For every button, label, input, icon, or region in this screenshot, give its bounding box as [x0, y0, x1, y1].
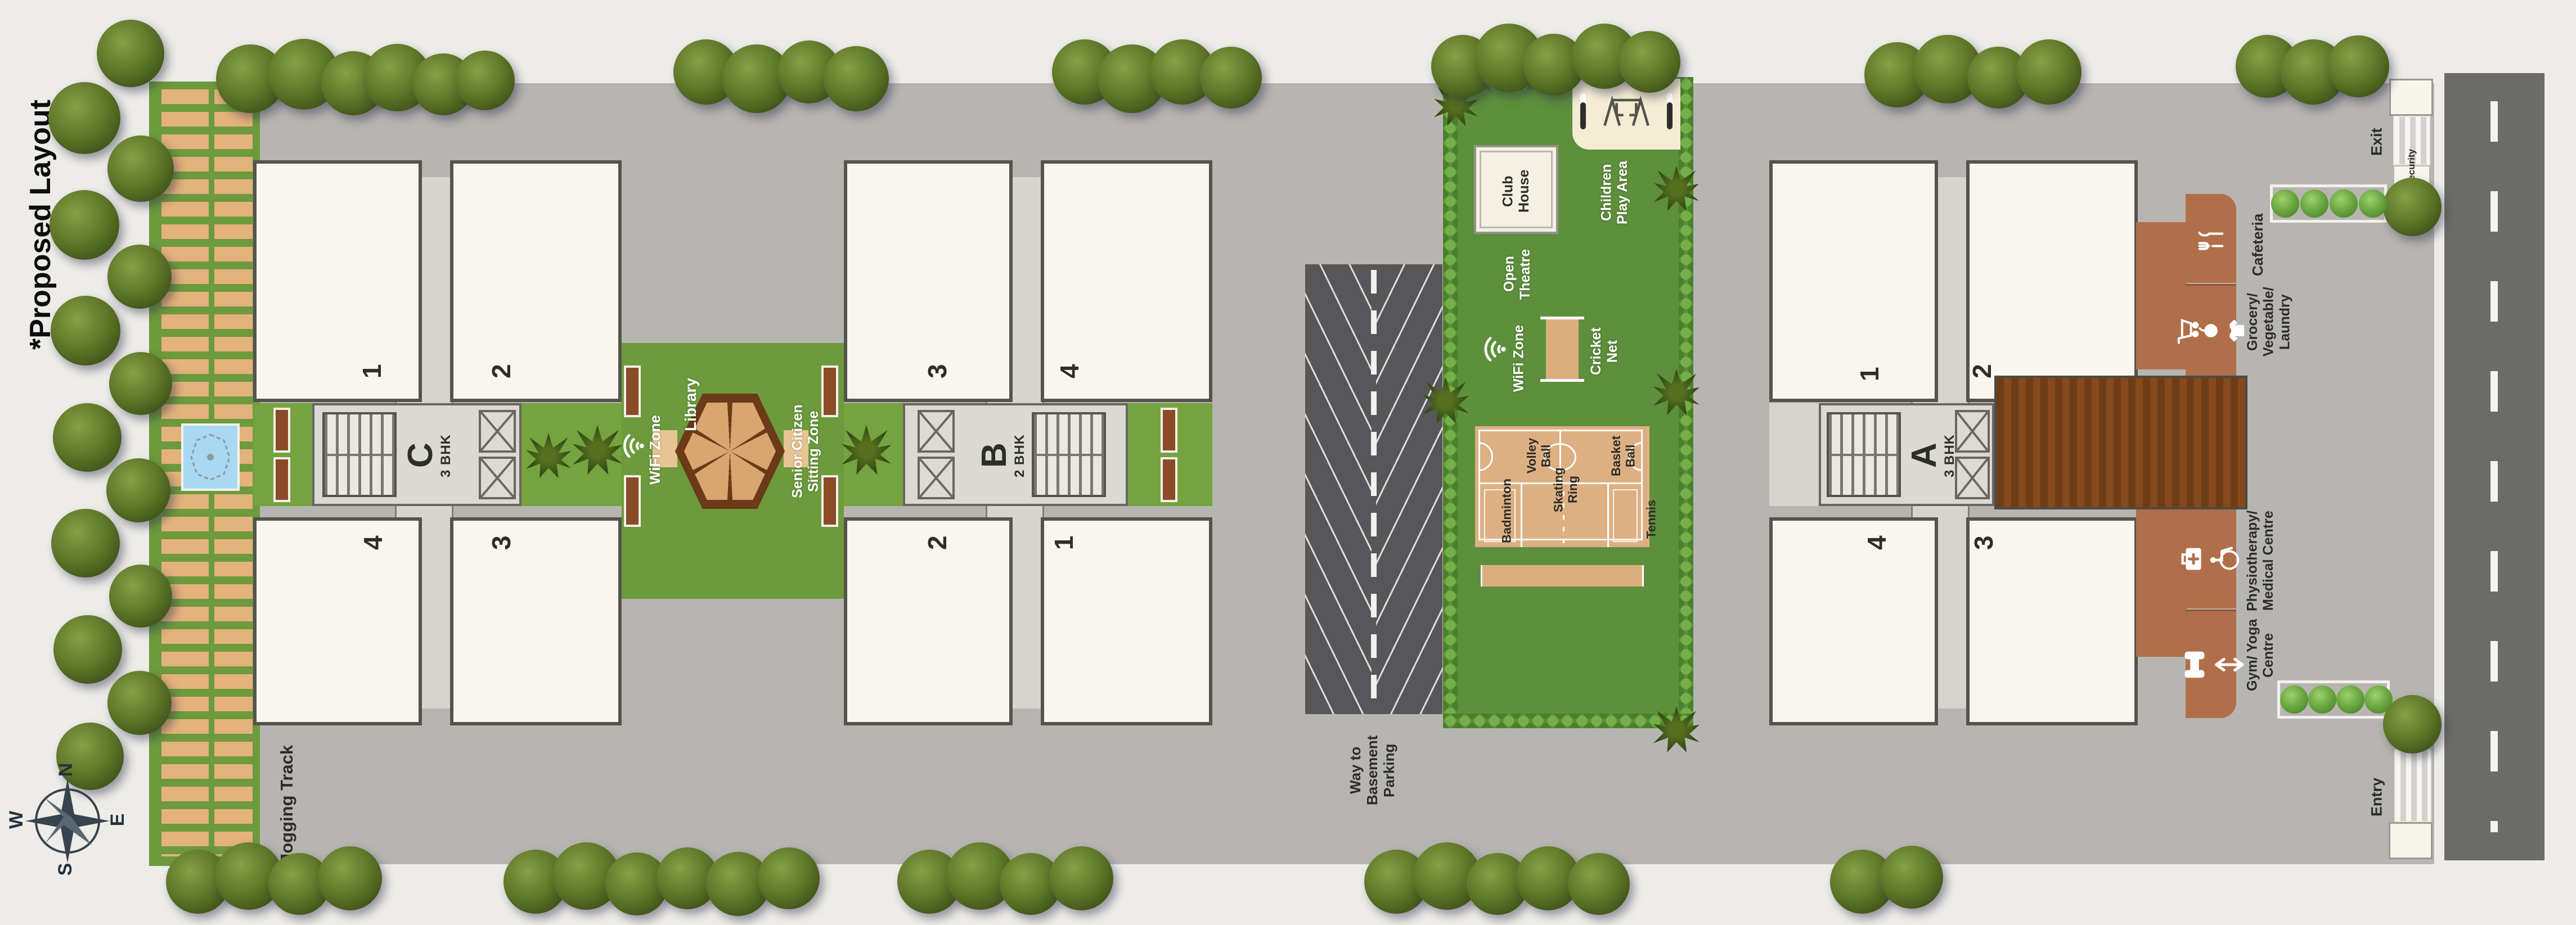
building-C-unit-label: 4: [358, 523, 384, 562]
building-C-type-label: 3 BHK: [438, 425, 455, 486]
skating-ring-label: Skating Ring: [1549, 464, 1582, 515]
tree-icon: [109, 352, 172, 415]
tree-icon: [107, 245, 172, 309]
play-pole-icon: [1667, 92, 1673, 129]
shop-grocery: [2186, 284, 2236, 376]
tree-icon: [2383, 178, 2442, 236]
compass-south: S: [55, 863, 76, 876]
entry-label: Entry: [2366, 770, 2388, 824]
building-A-stairs: [1827, 412, 1901, 497]
wooden-deck: [1994, 376, 2247, 509]
exit-gate-booth: [2389, 79, 2433, 116]
children-play-area: [1572, 79, 1680, 150]
bush-icon: [2280, 685, 2308, 714]
building-A-lobby: [1769, 403, 1819, 506]
compass-east: E: [107, 814, 127, 827]
tree-icon: [107, 136, 174, 202]
building-B-unit-label: 3: [923, 351, 948, 391]
building-B-stairs: [1032, 412, 1106, 497]
road-center-dashed-line: [2490, 101, 2498, 832]
sports-zone: Club House Children Play Area Open Theat…: [1443, 77, 1693, 728]
entry-gate-booth: [2389, 822, 2433, 859]
tree-icon: [455, 51, 515, 110]
tree-icon: [2016, 39, 2082, 105]
water-feature-octagon: [183, 426, 237, 489]
bench: [624, 475, 641, 527]
physiotherapy-icons: [2177, 543, 2245, 575]
building-C-label: C: [401, 416, 438, 495]
building-A-unit-label: 3: [1969, 523, 1995, 562]
tree-icon: [106, 458, 170, 522]
building-C-lift: [479, 410, 516, 453]
jogging-track-label: Jogging Track: [271, 739, 303, 869]
water-feature: [181, 423, 240, 491]
way-to-basement-parking-label: Way to Basement Parking: [1347, 725, 1395, 815]
building-A-balcony: [2136, 509, 2187, 657]
building-A-unit-label: 2: [1967, 351, 1993, 391]
tree-icon: [97, 20, 164, 87]
exit-label: Exit: [2366, 118, 2388, 166]
basket-ball-label: Basket Ball: [1609, 429, 1631, 482]
tree-icon: [51, 509, 120, 577]
bush-icon: [2330, 189, 2358, 218]
tree-icon: [1568, 853, 1630, 915]
building-A-unit-label: 1: [1855, 354, 1881, 394]
compass-rose-icon: N S W E: [8, 762, 127, 880]
parking-lot: [1305, 264, 1442, 714]
shop-physiotherapy: [2186, 509, 2236, 608]
central-garden: Library WiFi Zone Senior Citizen Sitting…: [622, 343, 844, 599]
building-C-wing-bottom-right: [450, 517, 622, 725]
cricket-net-label: Cricket Net: [1588, 316, 1611, 386]
proposed-layout-plan: *Proposed Layout N S W E Jogging Track: [0, 0, 2576, 925]
building-C-stairs: [322, 412, 397, 497]
building-C-courtyard-left: [253, 403, 312, 506]
tree-icon: [1880, 846, 1943, 909]
bench: [273, 457, 290, 502]
building-A-label: A: [1904, 416, 1941, 495]
bench: [273, 408, 290, 453]
building-B-unit-label: 1: [1049, 523, 1075, 562]
building-B-unit-label: 4: [1055, 351, 1081, 391]
sports-zone-bottom-strip: [1481, 565, 1644, 586]
building-C-wing-bottom-left: [253, 517, 422, 725]
sports-courts: Volley Ball Basket Ball Badminton Skatin…: [1475, 426, 1649, 547]
parking-center-dashed-line: [1371, 270, 1377, 709]
play-pole-icon: [1580, 92, 1586, 129]
tree-icon: [51, 296, 120, 366]
building-B-unit-label: 2: [923, 523, 948, 562]
building-C-wing-top-right: [450, 160, 622, 402]
tennis-court-lines: [1613, 489, 1638, 542]
tree-icon: [1200, 47, 1262, 109]
parking-herringbone-right: [1376, 264, 1442, 714]
bush-icon: [2308, 685, 2336, 714]
swing-set-icon: [1602, 96, 1651, 127]
tree-icon: [107, 671, 172, 735]
tree-icon: [53, 403, 122, 472]
club-house: Club House: [1474, 145, 1558, 234]
volley-ball-label: Volley Ball: [1525, 429, 1547, 482]
building-C-wing-top-left: [253, 160, 422, 402]
library-label: Library: [678, 351, 704, 458]
bench: [1161, 408, 1177, 453]
gym-label: Gym/ Yoga Centre: [2242, 613, 2279, 697]
bush-icon: [2300, 189, 2328, 218]
bush-icon: [2336, 685, 2364, 714]
building-C-lift: [479, 457, 516, 499]
compass-west: W: [8, 810, 27, 829]
cricket-net-crease: [1540, 317, 1584, 319]
parking-herringbone-left: [1305, 264, 1372, 714]
senior-citizen-sitting-zone-label: Senior Citizen Sitting Zone: [788, 391, 824, 512]
court-divider: [1607, 484, 1609, 547]
bench: [1161, 457, 1177, 502]
bush-icon: [2364, 685, 2393, 714]
tree-icon: [2327, 35, 2389, 97]
physiotherapy-label: Physiotherapy/ Medical Centre: [2242, 503, 2279, 619]
building-B-lift: [918, 410, 955, 453]
court-divider: [1521, 484, 1522, 547]
children-play-area-label: Children Play Area: [1596, 150, 1633, 234]
building-A-wing-bottom-left: [1769, 517, 1938, 725]
tree-icon: [109, 565, 172, 628]
compass-north: N: [55, 763, 77, 777]
building-C-unit-label: 2: [487, 351, 512, 391]
bench: [821, 475, 838, 527]
building-A-wing-top-left: [1769, 160, 1938, 402]
bush-icon: [2271, 189, 2299, 218]
cafeteria-icon: [2196, 223, 2226, 254]
building-B-lift: [918, 457, 955, 499]
cricket-net: [1546, 318, 1579, 381]
bench: [821, 366, 838, 417]
wifi-icon: [1478, 335, 1507, 364]
tree-icon: [1619, 31, 1680, 93]
building-C-unit-label: 1: [357, 351, 383, 391]
building-B: B 2 BHK 3 4 2 1: [844, 160, 1212, 725]
grocery-icons: [2174, 314, 2247, 348]
hedge-border: [1443, 714, 1693, 728]
court-d-arc: [1478, 442, 1493, 471]
shop-gym: [2186, 610, 2236, 718]
building-A-unit-label: 4: [1862, 523, 1888, 562]
tree-icon: [824, 46, 889, 111]
cricket-net-crease: [1540, 379, 1584, 382]
building-B-courtyard-right: [1128, 403, 1212, 506]
building-A-type-label: 3 BHK: [1941, 425, 1958, 486]
gym-icons: [2174, 648, 2247, 681]
tree-icon: [758, 847, 820, 909]
bench: [624, 366, 641, 417]
entry-gate-road: [2394, 749, 2431, 822]
sports-wifi-zone-label: WiFi Zone: [1508, 322, 1530, 395]
building-A-lift: [1955, 457, 1990, 499]
building-C: C 3 BHK 1 2 4 3: [253, 160, 622, 725]
shop-cafeteria: [2186, 194, 2236, 283]
tree-icon: [50, 190, 119, 260]
tree-icon: [53, 615, 122, 684]
tree-icon: [318, 846, 382, 910]
bush-icon: [2359, 189, 2387, 218]
grocery-label: Grocery/ Vegetable/ Laundry: [2242, 276, 2296, 368]
badminton-label: Badminton: [1495, 487, 1518, 543]
club-house-label: Club House: [1499, 160, 1534, 223]
building-A-lift: [1955, 410, 1990, 453]
tree-icon: [1049, 846, 1113, 910]
tree-icon: [48, 82, 120, 154]
building-B-label: B: [974, 416, 1011, 495]
open-theatre-label: Open Theatre: [1499, 239, 1535, 309]
central-wifi-zone-label: WiFi Zone: [644, 413, 667, 486]
building-B-type-label: 2 BHK: [1011, 425, 1028, 486]
building-C-unit-label: 3: [487, 523, 512, 562]
tennis-label: Tennis: [1641, 497, 1661, 542]
